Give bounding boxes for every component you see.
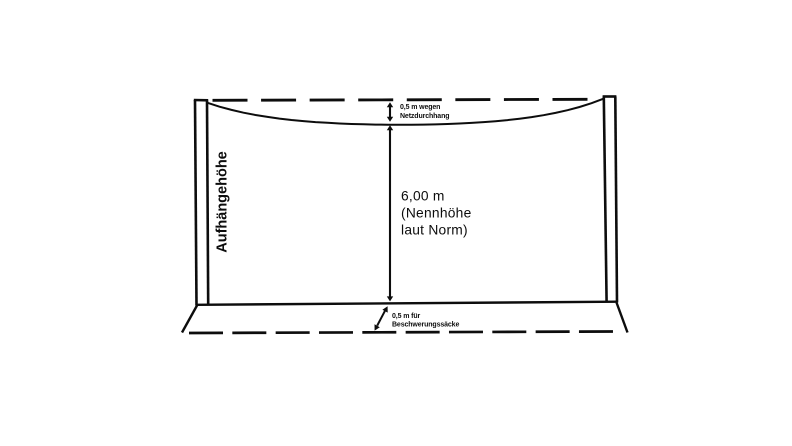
svg-text:Aufhängehöhe: Aufhängehöhe — [215, 151, 231, 253]
svg-text:laut Norm): laut Norm) — [401, 223, 468, 238]
svg-text:0,5 m für: 0,5 m für — [392, 313, 420, 320]
svg-text:Beschwerungssäcke: Beschwerungssäcke — [392, 321, 459, 328]
svg-text:Netzdurchhang: Netzdurchhang — [400, 113, 449, 120]
svg-text:0,5 m wegen: 0,5 m wegen — [400, 104, 440, 111]
svg-text:6,00 m: 6,00 m — [401, 188, 445, 203]
svg-text:(Nennhöhe: (Nennhöhe — [401, 206, 472, 221]
